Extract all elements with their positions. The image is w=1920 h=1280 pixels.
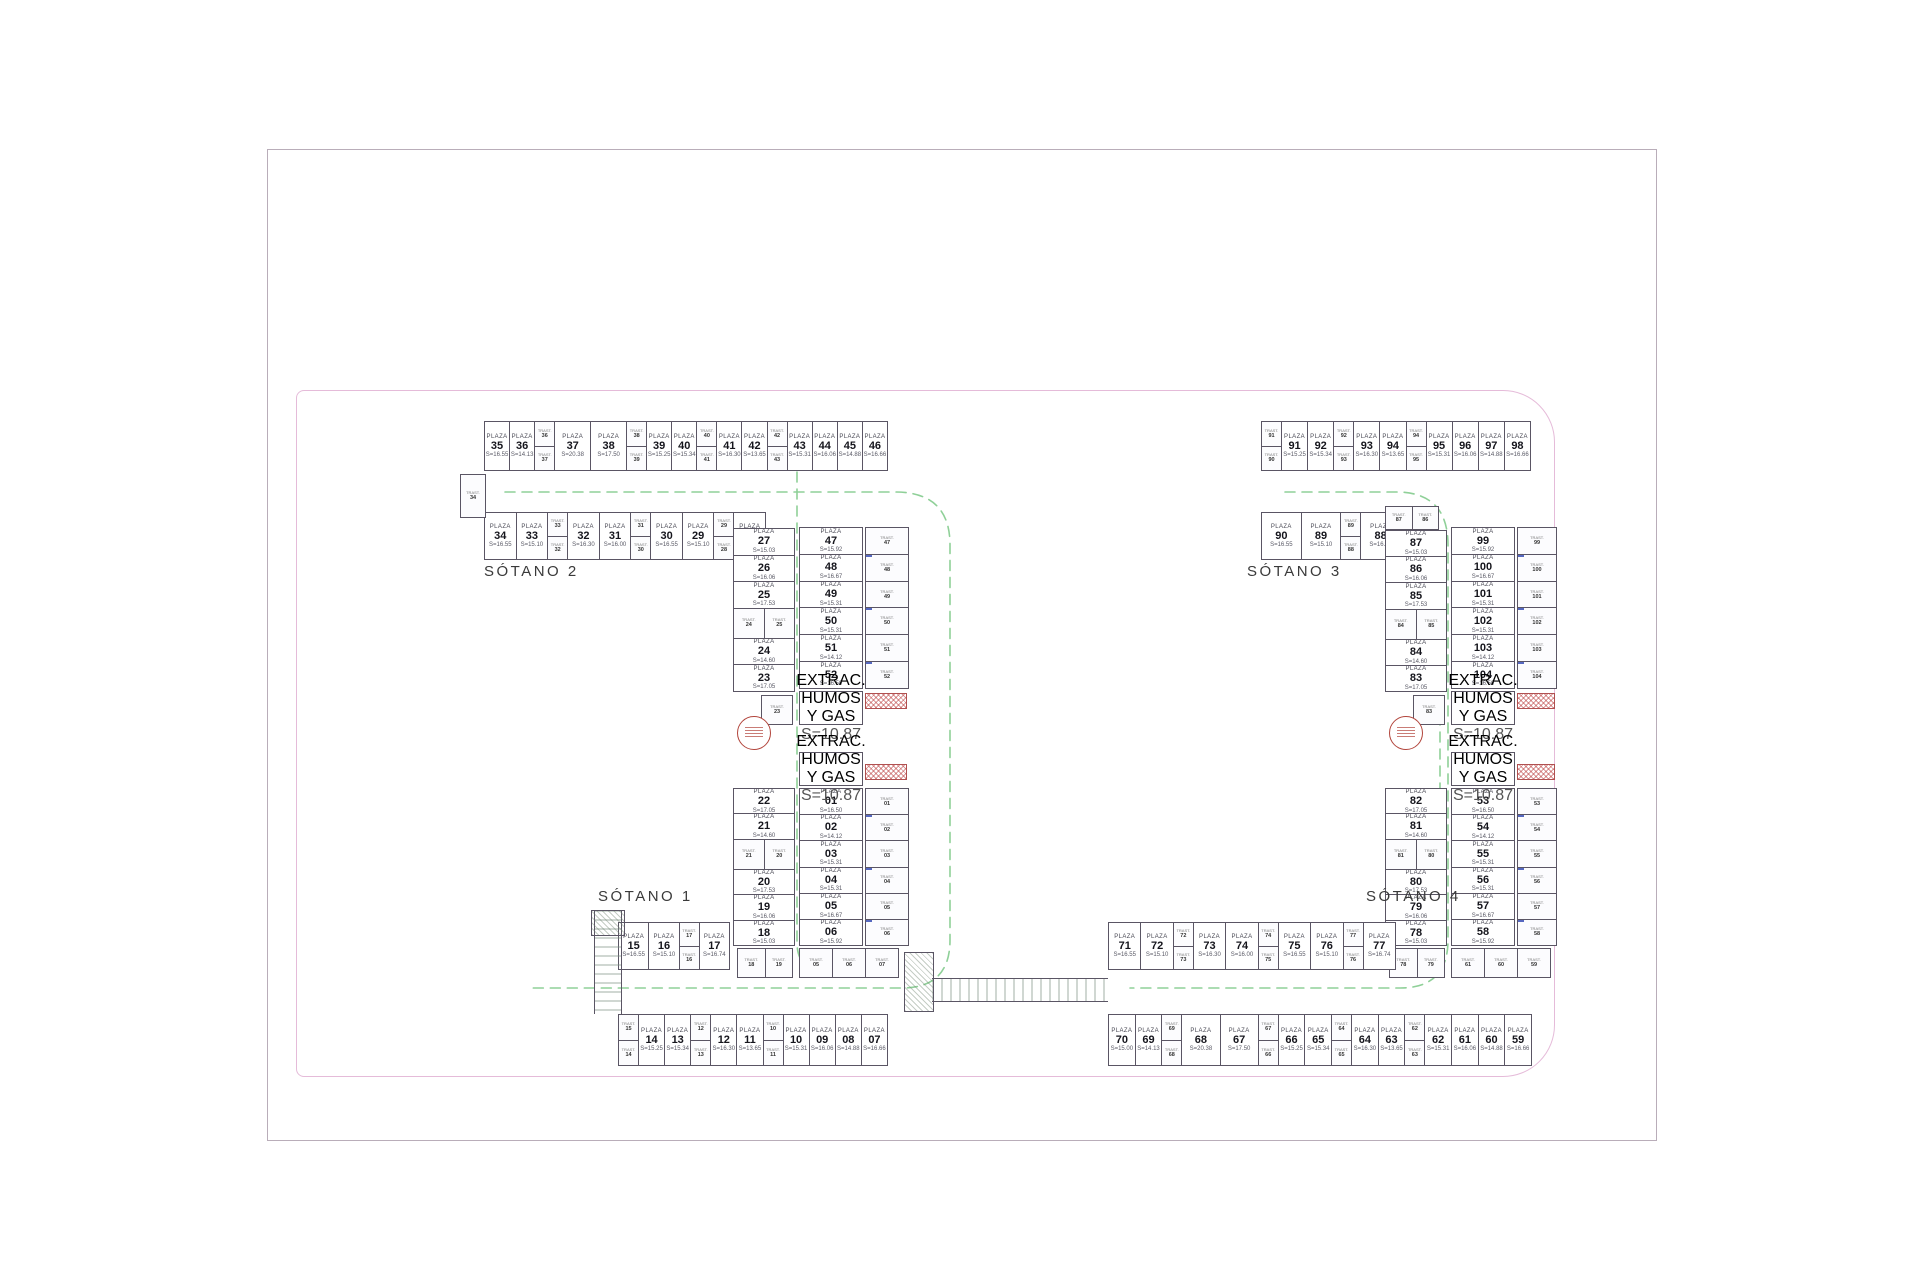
stall-area: S=16.55 <box>1283 952 1306 958</box>
stall-area: S=16.66 <box>1506 452 1529 458</box>
storage-unit: TRAST.24 <box>734 609 765 638</box>
stall-number: 83 <box>1410 672 1422 685</box>
storage-number: 72 <box>1180 933 1186 939</box>
stall-number: 58 <box>1477 926 1489 939</box>
stall-number: 10 <box>790 1034 802 1047</box>
storage-unit: TRAST.16 <box>680 947 699 970</box>
stall-number: 39 <box>653 440 665 453</box>
stall-area: S=15.34 <box>673 452 696 458</box>
parking-stall: PLAZA16S=15.10 <box>649 923 679 969</box>
row-inner-bottom: PLAZA71S=16.55PLAZA72S=15.10TRAST.72TRAS… <box>1108 922 1396 970</box>
parking-stall: PLAZA22S=17.05 <box>734 789 794 814</box>
storage-unit: TRAST.58 <box>1518 920 1556 945</box>
stall-area: S=15.34 <box>1309 452 1332 458</box>
stall-number: 57 <box>1477 900 1489 913</box>
storage-number: 73 <box>1180 957 1186 963</box>
storage-number: 81 <box>1398 853 1404 859</box>
col-mid-bottom: PLAZA01S=16.50PLAZA02S=14.12PLAZA03S=15.… <box>799 788 863 946</box>
sotano-label: SÓTANO 2 <box>484 563 579 580</box>
parking-stall: PLAZA02S=14.12 <box>800 815 862 841</box>
storage-unit: TRAST.37 <box>535 447 554 471</box>
storage-unit: TRAST.34 <box>461 475 485 517</box>
storage-unit: TRAST.64 <box>1332 1015 1351 1041</box>
stall-number: 67 <box>1233 1034 1245 1047</box>
parking-stall: PLAZA38S=17.50 <box>591 422 627 470</box>
stall-area: S=15.92 <box>1472 939 1495 945</box>
stall-number: 65 <box>1312 1034 1324 1047</box>
storage-unit: TRAST.53 <box>1518 789 1556 815</box>
stall-number: 76 <box>1321 940 1333 953</box>
stall-number: 63 <box>1385 1034 1397 1047</box>
storage-unit: TRAST.40 <box>697 422 716 447</box>
storage-number: 19 <box>776 962 782 968</box>
col-mid-top: PLAZA47S=15.92PLAZA48S=16.67PLAZA49S=15.… <box>799 527 863 689</box>
parking-stall: PLAZA50S=15.31 <box>800 608 862 635</box>
parking-stall: PLAZA14S=15.25 <box>639 1015 665 1065</box>
parking-stall: PLAZA54S=14.12 <box>1452 815 1514 841</box>
parking-stall: PLAZA32S=16.30 <box>568 513 600 559</box>
extraction-label: EXTRAC. <box>1448 672 1517 690</box>
parking-stall: PLAZA31S=16.00 <box>600 513 632 559</box>
storage-unit: TRAST.23 <box>762 696 792 724</box>
storage-row: TRAST.05TRAST.06TRAST.07 <box>799 948 899 978</box>
stall-number: 31 <box>609 530 621 543</box>
storage-number: 64 <box>1338 1026 1344 1032</box>
storage-number: 36 <box>542 433 548 439</box>
parking-stall: PLAZA45S=14.88 <box>838 422 863 470</box>
storage-unit: TRAST.101 <box>1518 582 1556 609</box>
stall-number: 56 <box>1477 874 1489 887</box>
storage-unit: TRAST.30 <box>631 537 650 560</box>
storage-number: 40 <box>704 433 710 439</box>
row-bottom: TRAST.15TRAST.14PLAZA14S=15.25PLAZA13S=1… <box>618 1014 888 1066</box>
storage-number: 16 <box>686 957 692 963</box>
storage-pair: TRAST.62TRAST.63 <box>1405 1015 1425 1065</box>
storage-unit: TRAST.31 <box>631 513 650 537</box>
storage-number: 57 <box>1534 905 1540 911</box>
storage-unit: TRAST.67 <box>1259 1015 1278 1041</box>
stall-area: S=14.88 <box>1480 452 1503 458</box>
storage-unit: TRAST.91 <box>1262 422 1281 447</box>
storage-number: 13 <box>698 1052 704 1058</box>
storage-number: 84 <box>1398 623 1404 629</box>
stall-area: S=14.60 <box>1405 833 1428 839</box>
parking-stall: PLAZA87S=15.03 <box>1386 531 1446 557</box>
storage-unit: TRAST.43 <box>768 447 787 471</box>
ramp-entry-hatch <box>904 952 934 1012</box>
parking-stall: PLAZA86S=16.06 <box>1386 557 1446 583</box>
storage-col: TRAST.01TRAST.02TRAST.03TRAST.04TRAST.05… <box>865 788 909 946</box>
storage-number: 102 <box>1532 620 1541 626</box>
stall-area: S=16.06 <box>1454 1046 1477 1052</box>
storage-number: 28 <box>721 547 727 553</box>
storage-pair: TRAST.15TRAST.14 <box>619 1015 639 1065</box>
extraction-label: Y GAS <box>1459 708 1508 726</box>
stall-area: S=15.31 <box>1427 1046 1450 1052</box>
stall-number: 60 <box>1485 1034 1497 1047</box>
storage-pair: TRAST.89TRAST.88 <box>1341 513 1361 559</box>
storage-number: 80 <box>1428 853 1434 859</box>
storage-unit: TRAST.06 <box>866 920 908 945</box>
smoke-extraction-room: EXTRAC.HUMOSY GASS=10.87 <box>799 752 863 786</box>
stall-area: S=15.10 <box>687 542 710 548</box>
parking-stall: PLAZA04S=15.31 <box>800 868 862 894</box>
col-left-top: PLAZA27S=15.03PLAZA26S=16.06PLAZA25S=17.… <box>733 528 795 692</box>
storage-number: 87 <box>1396 517 1402 523</box>
stall-number: 73 <box>1203 940 1215 953</box>
stall-area: S=14.12 <box>820 655 843 661</box>
storage-pair: TRAST.24TRAST.25 <box>734 609 794 639</box>
extraction-label: HUMOS <box>1453 751 1513 769</box>
col-right-top: PLAZA99S=15.92PLAZA100S=16.67PLAZA101S=1… <box>1451 527 1515 689</box>
stall-number: 04 <box>825 874 837 887</box>
parking-stall: PLAZA59S=16.66 <box>1505 1015 1531 1065</box>
parking-stall: PLAZA81S=14.60 <box>1386 814 1446 839</box>
stall-area: S=13.65 <box>1380 1046 1403 1052</box>
stall-number: 44 <box>819 440 831 453</box>
storage-unit: TRAST.55 <box>1518 841 1556 867</box>
storage-unit: TRAST.25 <box>765 609 795 638</box>
stall-area: S=14.60 <box>1405 659 1428 665</box>
storage-pair: TRAST.40TRAST.41 <box>697 422 717 470</box>
storage-number: 14 <box>625 1052 631 1058</box>
storage-number: 18 <box>748 962 754 968</box>
storage-number: 69 <box>1169 1026 1175 1032</box>
storage-unit: TRAST.28 <box>714 537 733 560</box>
storage-number: 75 <box>1265 957 1271 963</box>
edge-storage: TRAST.34 <box>460 474 486 518</box>
stall-area: S=16.55 <box>489 542 512 548</box>
stall-number: 11 <box>744 1034 756 1047</box>
stall-area: S=16.00 <box>604 542 627 548</box>
stall-area: S=16.30 <box>1198 952 1221 958</box>
stall-area: S=15.03 <box>753 939 776 945</box>
stall-number: 69 <box>1142 1034 1154 1047</box>
storage-unit: TRAST.68 <box>1162 1041 1181 1066</box>
storage-unit: TRAST.57 <box>1518 894 1556 920</box>
stall-number: 81 <box>1410 820 1422 833</box>
storage-number: 07 <box>879 962 885 968</box>
parking-stall: PLAZA68S=20.38 <box>1182 1015 1220 1065</box>
storage-number: 103 <box>1532 647 1541 653</box>
parking-stall: PLAZA26S=16.06 <box>734 556 794 583</box>
stall-area: S=16.06 <box>753 575 776 581</box>
row-second: PLAZA34S=16.55PLAZA33S=15.10TRAST.33TRAS… <box>484 512 766 560</box>
storage-unit: TRAST.07 <box>866 949 898 977</box>
stall-number: 07 <box>868 1034 880 1047</box>
stall-number: 37 <box>567 440 579 453</box>
storage-number: 05 <box>884 905 890 911</box>
stall-number: 102 <box>1474 615 1492 628</box>
storage-number: 23 <box>774 709 780 715</box>
storage-number: 10 <box>770 1026 776 1032</box>
stall-area: S=16.67 <box>820 574 843 580</box>
stall-area: S=15.31 <box>785 1046 808 1052</box>
storage-number: 15 <box>625 1026 631 1032</box>
stall-area: S=16.06 <box>813 452 836 458</box>
parking-stall: PLAZA33S=15.10 <box>517 513 549 559</box>
sotano-label: SÓTANO 1 <box>598 888 693 905</box>
storage-pair: TRAST.64TRAST.65 <box>1332 1015 1352 1065</box>
storage-unit: TRAST.21 <box>734 840 765 869</box>
stall-number: 91 <box>1288 440 1300 453</box>
stall-area: S=15.31 <box>1428 452 1451 458</box>
storage-unit: TRAST.11 <box>764 1041 783 1066</box>
parking-stall: PLAZA19S=16.06 <box>734 895 794 920</box>
parking-stall: PLAZA13S=15.34 <box>665 1015 691 1065</box>
stall-area: S=14.12 <box>1472 834 1495 840</box>
storage-number: 88 <box>1348 547 1354 553</box>
stall-area: S=14.60 <box>753 658 776 664</box>
storage-unit: TRAST.90 <box>1262 447 1281 471</box>
sotano-label: SÓTANO 4 <box>1366 888 1461 905</box>
storage-number: 68 <box>1169 1052 1175 1058</box>
parking-stall: PLAZA72S=15.10 <box>1141 923 1173 969</box>
stall-area: S=20.38 <box>561 452 584 458</box>
parking-stall: PLAZA67S=17.50 <box>1221 1015 1259 1065</box>
parking-stall: PLAZA23S=17.05 <box>734 665 794 691</box>
storage-unit: TRAST.29 <box>714 513 733 537</box>
stall-area: S=16.30 <box>718 452 741 458</box>
stall-number: 97 <box>1485 440 1497 453</box>
parking-stall: PLAZA47S=15.92 <box>800 528 862 555</box>
stall-area: S=16.06 <box>753 914 776 920</box>
storage-unit: TRAST.94 <box>1407 422 1426 447</box>
stall-area: S=16.50 <box>1472 808 1495 814</box>
storage-unit: TRAST.47 <box>866 528 908 555</box>
storage-unit: TRAST.18 <box>738 949 766 977</box>
parking-stall: PLAZA66S=15.25 <box>1279 1015 1306 1065</box>
drawing-canvas: PLAZA35S=16.55PLAZA36S=14.13TRAST.36TRAS… <box>0 0 1920 1280</box>
storage-unit: TRAST.03 <box>866 841 908 867</box>
parking-stall: PLAZA65S=15.34 <box>1305 1015 1332 1065</box>
stall-number: 50 <box>825 615 837 628</box>
parking-stall: PLAZA49S=15.31 <box>800 582 862 609</box>
storage-pair: TRAST.17TRAST.16 <box>680 923 700 969</box>
storage-unit: TRAST.05 <box>800 949 833 977</box>
storage-number: 95 <box>1413 457 1419 463</box>
stall-area: S=15.10 <box>653 952 676 958</box>
stall-number: 93 <box>1361 440 1373 453</box>
stall-area: S=15.03 <box>753 548 776 554</box>
storage-number: 101 <box>1532 594 1541 600</box>
ramp <box>932 978 1108 1002</box>
storage-unit: TRAST.15 <box>619 1015 638 1041</box>
stall-number: 84 <box>1410 646 1422 659</box>
storage-number: 25 <box>776 622 782 628</box>
extraction-label: EXTRAC. <box>796 672 865 690</box>
parking-stall: PLAZA43S=15.31 <box>788 422 813 470</box>
storage-number: 21 <box>746 853 752 859</box>
parking-stall: PLAZA11S=13.65 <box>737 1015 763 1065</box>
stall-number: 41 <box>723 440 735 453</box>
stall-area: S=16.30 <box>1354 1046 1377 1052</box>
stall-number: 38 <box>603 440 615 453</box>
storage-number: 104 <box>1532 674 1541 680</box>
parking-stall: PLAZA06S=15.92 <box>800 920 862 945</box>
storage-number: 55 <box>1534 853 1540 859</box>
storage-row: TRAST.78TRAST.79 <box>1389 948 1445 978</box>
stall-number: 80 <box>1410 876 1422 889</box>
parking-stall: PLAZA34S=16.55 <box>485 513 517 559</box>
stall-number: 74 <box>1236 940 1248 953</box>
parking-stall: PLAZA57S=16.67 <box>1452 894 1514 920</box>
storage-unit: TRAST.54 <box>1518 815 1556 841</box>
storage-number: 20 <box>776 853 782 859</box>
stall-area: S=15.03 <box>1405 550 1428 556</box>
stall-number: 18 <box>758 927 770 940</box>
storage-number: 17 <box>686 933 692 939</box>
smoke-extraction-room: EXTRAC.HUMOSY GASS=10.87 <box>1451 691 1515 725</box>
storage-unit: TRAST.39 <box>627 447 646 471</box>
stall-number: 35 <box>491 440 503 453</box>
stair-hatch <box>865 764 907 780</box>
stall-number: 95 <box>1433 440 1445 453</box>
parking-stall: PLAZA93S=16.30 <box>1354 422 1380 470</box>
storage-unit: TRAST.87 <box>1386 507 1413 529</box>
storage-unit: TRAST.52 <box>866 662 908 688</box>
storage-number: 05 <box>813 962 819 968</box>
stall-number: 89 <box>1315 530 1327 543</box>
storage-number: 77 <box>1350 933 1356 939</box>
parking-stall: PLAZA98S=16.66 <box>1505 422 1530 470</box>
stall-number: 16 <box>658 940 670 953</box>
storage-unit: TRAST.73 <box>1174 947 1193 970</box>
stall-area: S=16.74 <box>1368 952 1391 958</box>
extraction-area: S=10.87 <box>1453 787 1513 805</box>
storage-unit: TRAST.95 <box>1407 447 1426 471</box>
stall-number: 72 <box>1151 940 1163 953</box>
storage-row: TRAST.18TRAST.19 <box>737 948 793 978</box>
ventilation-shaft-symbol <box>737 716 771 750</box>
parking-stall: PLAZA82S=17.05 <box>1386 789 1446 814</box>
parking-stall: PLAZA44S=16.06 <box>813 422 838 470</box>
storage-number: 65 <box>1338 1052 1344 1058</box>
storage-number: 90 <box>1268 457 1274 463</box>
storage-number: 33 <box>555 523 561 529</box>
parking-stall: PLAZA103S=14.12 <box>1452 635 1514 662</box>
storage-number: 91 <box>1268 433 1274 439</box>
storage-unit: TRAST.41 <box>697 447 716 471</box>
storage-unit: TRAST.63 <box>1405 1041 1424 1066</box>
stall-area: S=17.05 <box>1405 808 1428 814</box>
storage-number: 54 <box>1534 827 1540 833</box>
stall-area: S=17.05 <box>753 808 776 814</box>
storage-unit: TRAST.59 <box>1518 949 1550 977</box>
stall-area: S=17.53 <box>753 601 776 607</box>
stall-area: S=17.53 <box>753 888 776 894</box>
stall-area: S=15.03 <box>1405 939 1428 945</box>
stall-number: 92 <box>1315 440 1327 453</box>
stall-area: S=20.38 <box>1190 1046 1213 1052</box>
stall-area: S=15.92 <box>820 939 843 945</box>
storage-unit: TRAST.20 <box>765 840 795 869</box>
parking-stall: PLAZA75S=16.55 <box>1279 923 1311 969</box>
storage-unit: TRAST.32 <box>548 537 567 560</box>
storage-number: 30 <box>638 547 644 553</box>
parking-stall: PLAZA63S=13.65 <box>1379 1015 1406 1065</box>
stall-area: S=16.30 <box>713 1046 736 1052</box>
parking-stall: PLAZA101S=15.31 <box>1452 582 1514 609</box>
parking-stall: PLAZA96S=16.06 <box>1453 422 1479 470</box>
storage-number: 99 <box>1534 540 1540 546</box>
storage-pair: TRAST.92TRAST.93 <box>1334 422 1354 470</box>
parking-stall: PLAZA74S=16.00 <box>1226 923 1258 969</box>
parking-stall: PLAZA39S=15.25 <box>647 422 672 470</box>
storage-number: 100 <box>1532 567 1541 573</box>
storage-unit: TRAST.36 <box>535 422 554 447</box>
stall-area: S=17.50 <box>1228 1046 1251 1052</box>
stall-number: 87 <box>1410 537 1422 550</box>
stall-area: S=15.00 <box>1111 1046 1134 1052</box>
storage-number: 34 <box>470 495 476 501</box>
sotano-label: SÓTANO 3 <box>1247 563 1342 580</box>
stall-area: S=17.50 <box>597 452 620 458</box>
storage-number: 56 <box>1534 879 1540 885</box>
parking-stall: PLAZA48S=16.67 <box>800 555 862 582</box>
storage-number: 49 <box>884 594 890 600</box>
stall-number: 86 <box>1410 563 1422 576</box>
parking-stall: PLAZA58S=15.92 <box>1452 920 1514 945</box>
stall-area: S=14.12 <box>1472 655 1495 661</box>
stall-number: 85 <box>1410 590 1422 603</box>
storage-number: 66 <box>1265 1052 1271 1058</box>
storage-unit: TRAST.99 <box>1518 528 1556 555</box>
storage-number: 51 <box>884 647 890 653</box>
stall-number: 42 <box>748 440 760 453</box>
storage-pair: TRAST.77TRAST.76 <box>1344 923 1364 969</box>
stall-number: 96 <box>1459 440 1471 453</box>
row-second: PLAZA90S=16.55PLAZA89S=15.10TRAST.89TRAS… <box>1261 512 1401 560</box>
stall-area: S=17.53 <box>1405 602 1428 608</box>
ventilation-shaft-symbol <box>1389 716 1423 750</box>
stall-number: 78 <box>1410 927 1422 940</box>
storage-number: 42 <box>774 433 780 439</box>
storage-number: 39 <box>634 457 640 463</box>
storage-unit: TRAST.84 <box>1386 610 1417 639</box>
stall-area: S=15.10 <box>1316 952 1339 958</box>
storage-pair: TRAST.81TRAST.80 <box>1386 840 1446 870</box>
extraction-label: HUMOS <box>801 690 861 708</box>
parking-stall: PLAZA70S=15.00 <box>1109 1015 1136 1065</box>
storage-number: 32 <box>555 547 561 553</box>
stall-area: S=16.55 <box>655 542 678 548</box>
storage-unit: TRAST.02 <box>866 815 908 841</box>
parking-stall: PLAZA27S=15.03 <box>734 529 794 556</box>
stall-number: 22 <box>758 795 770 808</box>
stall-number: 25 <box>758 589 770 602</box>
parking-stall: PLAZA30S=16.55 <box>651 513 683 559</box>
storage-unit: TRAST.93 <box>1334 447 1353 471</box>
storage-number: 50 <box>884 620 890 626</box>
parking-stall: PLAZA29S=15.10 <box>683 513 715 559</box>
stall-area: S=16.66 <box>863 1046 886 1052</box>
parking-stall: PLAZA77S=16.74 <box>1364 923 1395 969</box>
stall-number: 13 <box>672 1034 684 1047</box>
stall-area: S=16.06 <box>1454 452 1477 458</box>
parking-stall: PLAZA08S=14.88 <box>836 1015 862 1065</box>
stall-number: 99 <box>1477 535 1489 548</box>
storage-number: 76 <box>1350 957 1356 963</box>
stall-area: S=15.34 <box>1307 1046 1330 1052</box>
stall-area: S=15.10 <box>1146 952 1169 958</box>
stall-number: 32 <box>577 530 589 543</box>
storage-unit: TRAST.06 <box>833 949 866 977</box>
storage-unit: TRAST.19 <box>766 949 793 977</box>
storage-number: 63 <box>1412 1052 1418 1058</box>
stall-number: 66 <box>1285 1034 1297 1047</box>
storage-number: 83 <box>1426 709 1432 715</box>
